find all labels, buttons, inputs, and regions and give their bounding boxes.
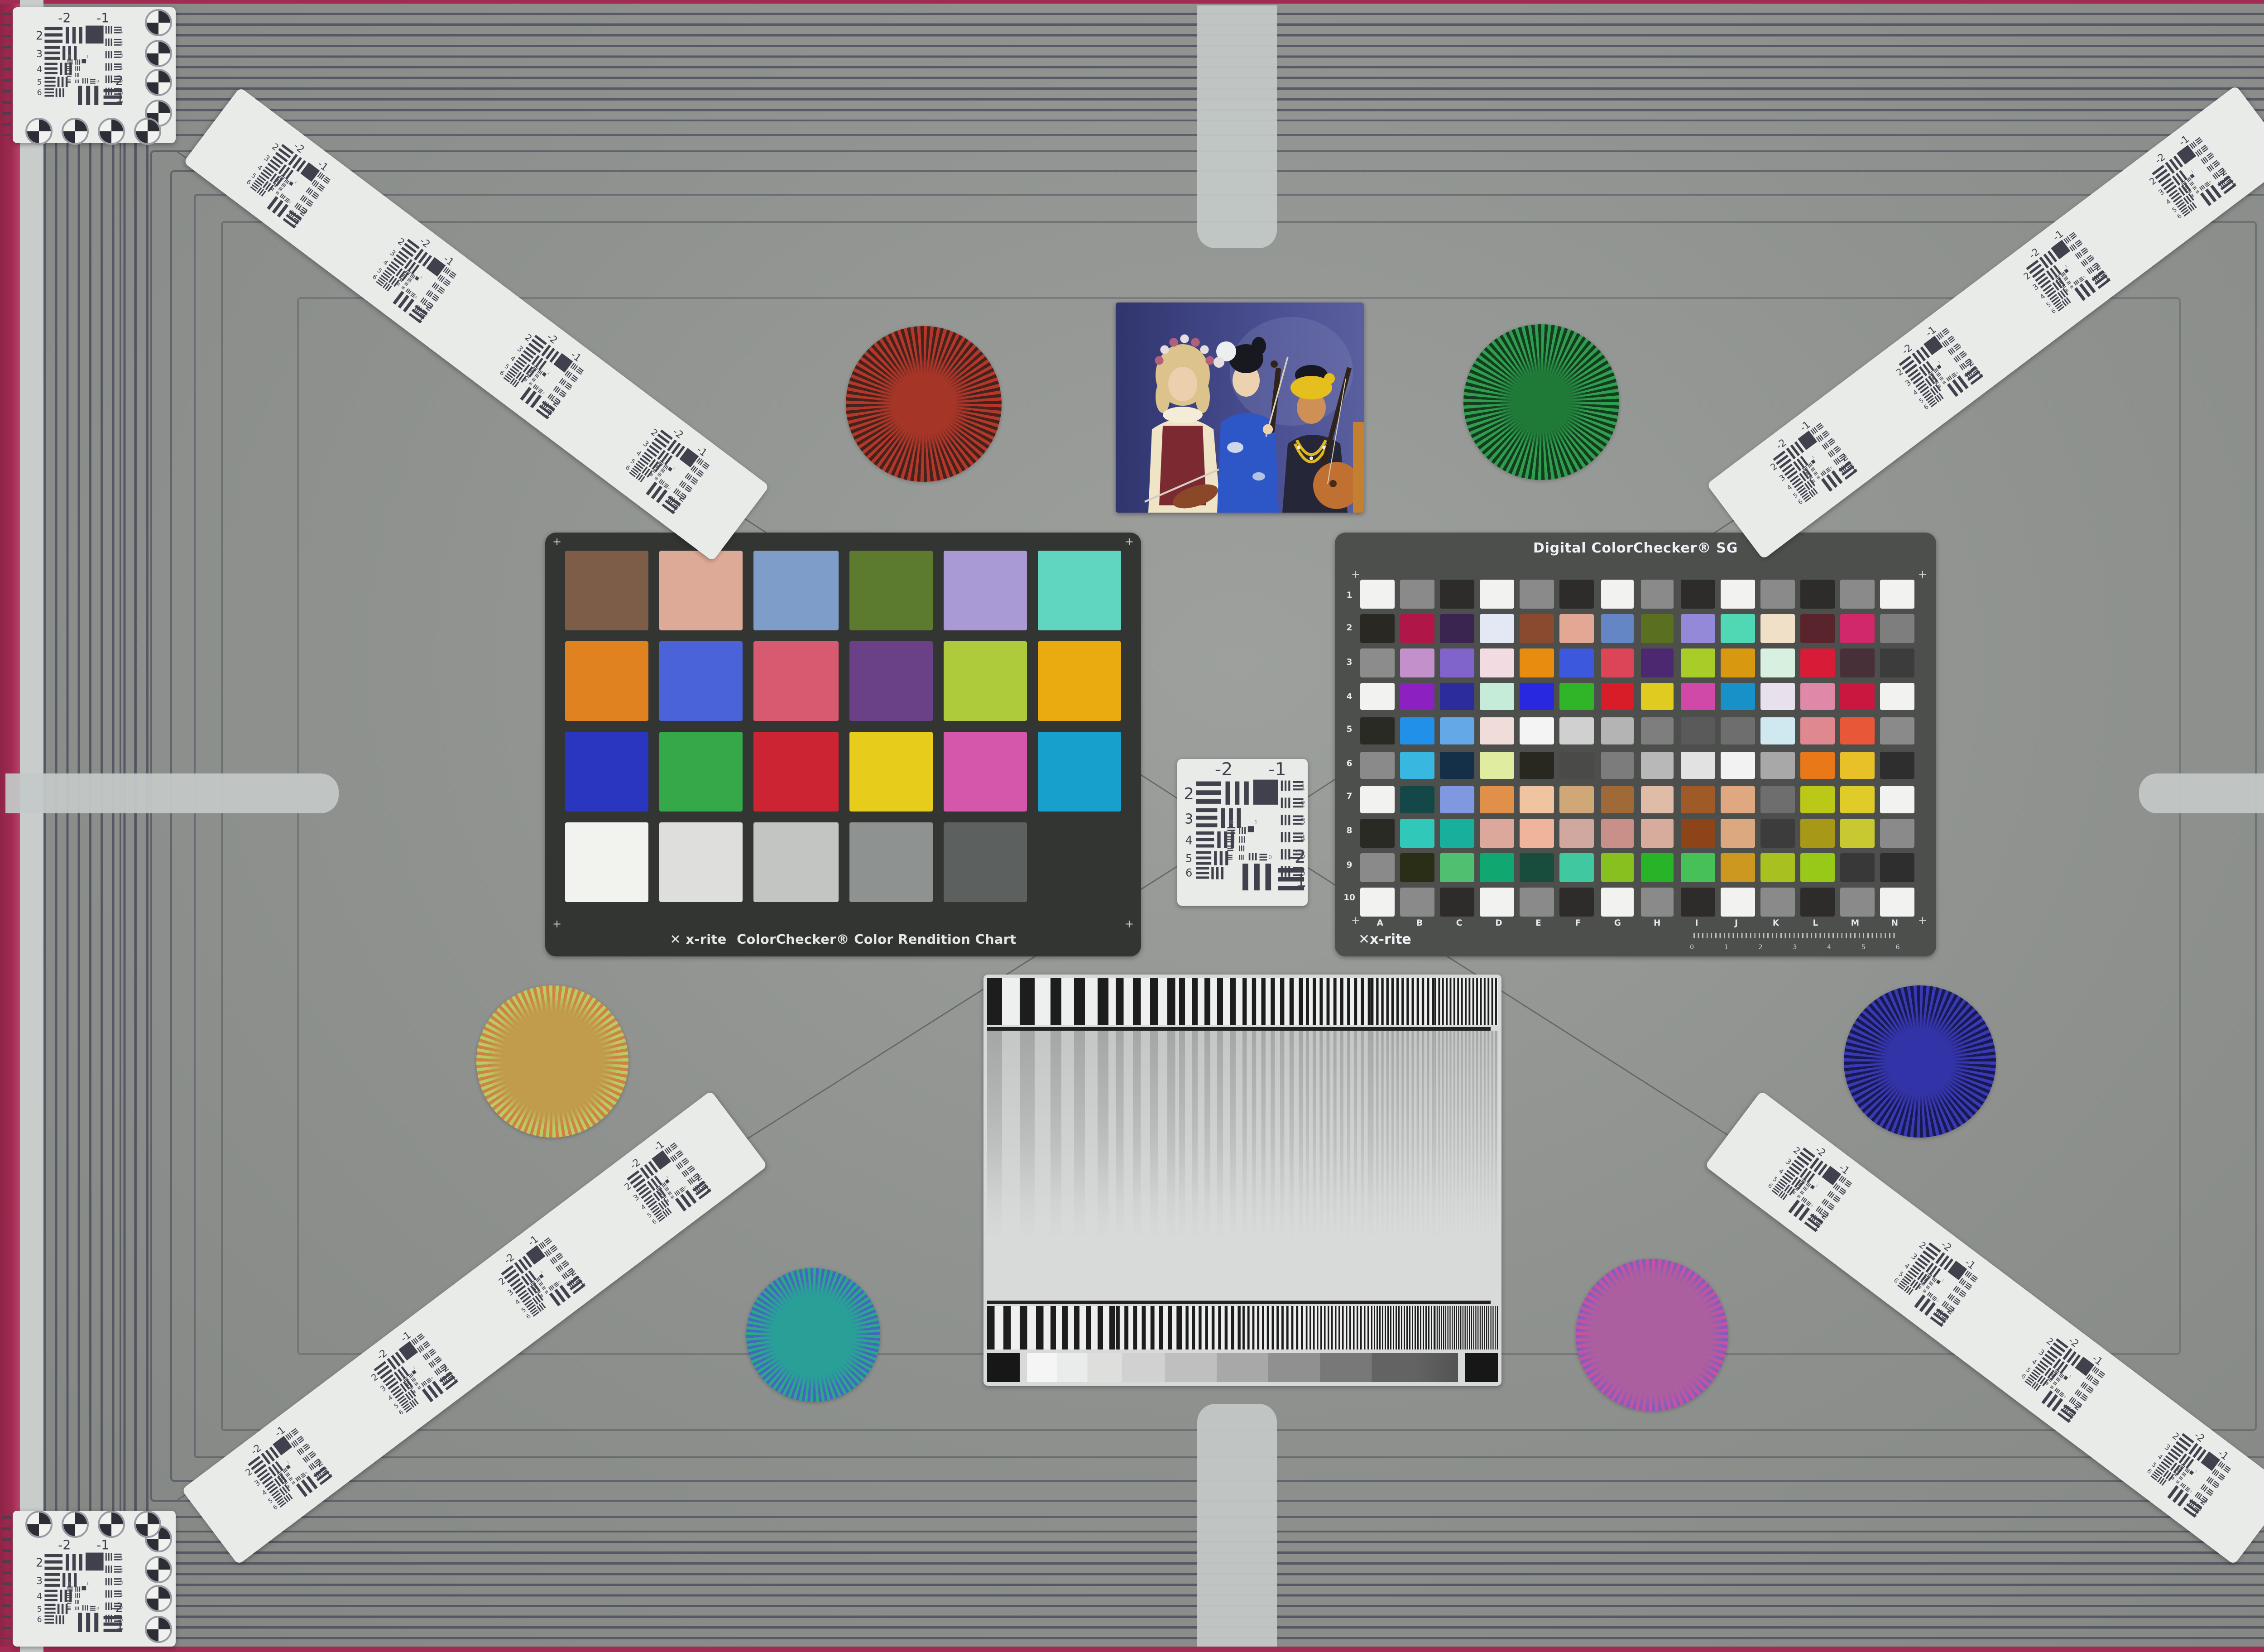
quadrant-circle-icon <box>27 119 51 142</box>
color-patch <box>1560 888 1594 917</box>
svg-text:0: 0 <box>663 457 667 462</box>
quadrant-circle-icon <box>63 1512 87 1535</box>
edge-tick-ruler <box>2 1516 10 1639</box>
color-patch <box>1440 820 1474 848</box>
sg-micro-ruler <box>1693 932 1896 938</box>
svg-text:1: 1 <box>86 1581 89 1586</box>
svg-text:2: 2 <box>1824 430 1830 436</box>
color-patch <box>1800 820 1834 848</box>
svg-text:2: 2 <box>299 1436 305 1441</box>
svg-text:6: 6 <box>2147 1468 2154 1475</box>
edge-light-strip <box>20 0 43 1652</box>
color-patch <box>1360 614 1394 643</box>
color-patch <box>1400 580 1434 608</box>
svg-text:1: 1 <box>674 465 678 470</box>
registration-plus-icon: + <box>1918 571 1927 581</box>
color-patch <box>1880 648 1914 677</box>
svg-text:-2: -2 <box>628 1156 643 1171</box>
svg-text:-1: -1 <box>96 1538 109 1552</box>
color-patch <box>565 732 649 812</box>
color-patch <box>754 822 838 902</box>
svg-text:0: 0 <box>1804 1174 1808 1179</box>
color-patch <box>1400 614 1434 643</box>
edge-tick-ruler <box>2 13 10 136</box>
svg-text:3: 3 <box>263 152 272 162</box>
color-patch <box>660 732 743 812</box>
chart-title: ColorChecker® Color Rendition Chart <box>737 931 1016 947</box>
svg-text:0: 0 <box>288 199 293 204</box>
color-patch <box>1721 785 1755 814</box>
svg-text:1: 1 <box>547 370 551 374</box>
svg-text:2: 2 <box>36 29 43 43</box>
svg-text:-2: -2 <box>2193 1430 2208 1445</box>
label: D <box>1479 920 1518 929</box>
svg-text:1: 1 <box>294 1428 299 1433</box>
svg-text:0: 0 <box>2190 1489 2194 1494</box>
svg-text:4: 4 <box>311 1451 317 1456</box>
color-patch <box>1760 648 1794 677</box>
color-patch <box>849 822 932 902</box>
svg-text:0: 0 <box>542 390 546 394</box>
color-patch <box>1721 854 1755 882</box>
svg-text:2: 2 <box>1184 785 1194 803</box>
svg-text:1: 1 <box>2068 1373 2072 1378</box>
colorchecker-classic: + + + + ✕ x-rite ColorChecker® Color Ren… <box>545 533 1141 956</box>
color-patch <box>1521 820 1554 848</box>
color-patch <box>1880 785 1914 814</box>
color-patch <box>1760 888 1794 917</box>
label: 5 <box>1340 727 1358 736</box>
svg-text:1: 1 <box>1815 1182 1819 1187</box>
svg-text:3: 3 <box>120 1579 123 1585</box>
color-patch <box>1800 580 1834 608</box>
svg-text:1: 1 <box>1254 819 1258 826</box>
svg-text:3: 3 <box>2037 1347 2046 1357</box>
color-patch <box>1560 614 1594 643</box>
svg-text:4: 4 <box>2038 293 2046 301</box>
svg-text:1: 1 <box>116 1618 124 1633</box>
svg-text:0: 0 <box>2063 1393 2067 1398</box>
color-patch <box>1721 751 1755 779</box>
corner-fiducial-bottom-left: 23456-2-1123456010-21 <box>13 1511 176 1647</box>
svg-text:3: 3 <box>305 1443 311 1449</box>
grayscale-ramp <box>1027 1353 1458 1382</box>
crimson-edge-top <box>0 0 2264 4</box>
color-patch <box>1600 614 1634 643</box>
color-patch <box>660 551 743 630</box>
svg-text:2: 2 <box>2078 239 2083 245</box>
svg-text:4: 4 <box>2089 255 2095 260</box>
color-patch <box>1880 580 1914 608</box>
color-patch <box>1640 820 1674 848</box>
quadrant-circle-icon <box>147 1557 170 1580</box>
siemens-star-green <box>1463 324 1619 480</box>
svg-text:5: 5 <box>1898 1270 1905 1278</box>
svg-text:2: 2 <box>397 235 408 247</box>
svg-text:6: 6 <box>1893 1277 1900 1284</box>
color-patch <box>1680 614 1714 643</box>
label: 5 <box>1861 943 1866 950</box>
svg-text:1: 1 <box>321 1467 333 1479</box>
svg-text:2: 2 <box>1951 335 1957 340</box>
svg-text:1: 1 <box>701 1180 713 1193</box>
svg-text:6: 6 <box>372 273 379 281</box>
label: 10 <box>1340 895 1358 904</box>
color-patch <box>1400 682 1434 711</box>
color-patch <box>849 551 932 630</box>
svg-text:1: 1 <box>538 1269 542 1273</box>
svg-text:-2: -2 <box>2066 1334 2081 1349</box>
color-patch <box>1680 854 1714 882</box>
svg-text:1: 1 <box>120 1554 123 1561</box>
color-patch <box>1521 785 1554 814</box>
color-patch <box>1841 785 1875 814</box>
label: I <box>1677 920 1716 929</box>
color-patch <box>1640 682 1674 711</box>
color-patch <box>1400 854 1434 882</box>
color-patch <box>1721 888 1755 917</box>
color-patch <box>1360 751 1394 779</box>
svg-text:-1: -1 <box>1797 419 1812 434</box>
brand-name: x-rite <box>686 931 726 947</box>
color-patch <box>1800 854 1834 882</box>
svg-text:3: 3 <box>2164 1442 2173 1452</box>
color-patch <box>1680 888 1714 917</box>
color-patch <box>1360 717 1394 745</box>
svg-text:0: 0 <box>2184 1461 2188 1465</box>
grayscale-ramp-row <box>987 1353 1498 1382</box>
label: 1 <box>1724 943 1728 950</box>
svg-text:-1: -1 <box>1268 759 1286 780</box>
border-stripes-top <box>16 13 2264 118</box>
registration-plus-icon: + <box>1351 917 1360 927</box>
color-patch <box>1841 580 1875 608</box>
svg-text:5: 5 <box>250 171 257 179</box>
svg-text:1: 1 <box>665 1173 669 1178</box>
svg-text:4: 4 <box>2030 1357 2038 1365</box>
svg-text:4: 4 <box>120 1591 123 1598</box>
color-patch <box>1841 820 1875 848</box>
color-patch <box>660 641 743 721</box>
label: F <box>1558 920 1597 929</box>
quadrant-circle-icon <box>136 119 159 142</box>
corner-fiducial-top-left: 23456-2-1123456010-21 <box>13 7 176 143</box>
svg-text:0: 0 <box>1936 1298 1940 1302</box>
color-patch <box>1760 854 1794 882</box>
color-patch <box>1841 614 1875 643</box>
svg-text:4: 4 <box>1785 483 1793 491</box>
color-patch <box>1841 682 1875 711</box>
siemens-star-gold <box>476 985 628 1138</box>
svg-text:-2: -2 <box>1813 1143 1828 1158</box>
svg-text:4: 4 <box>564 1260 570 1265</box>
color-patch <box>1480 614 1514 643</box>
svg-text:0: 0 <box>2058 1365 2062 1370</box>
color-patch <box>849 732 932 812</box>
color-patch <box>1841 888 1875 917</box>
svg-text:-2: -2 <box>248 1442 263 1457</box>
svg-text:1: 1 <box>420 274 424 279</box>
svg-text:0: 0 <box>668 485 672 490</box>
label: 2 <box>1759 943 1763 950</box>
color-patch <box>1680 580 1714 608</box>
svg-text:1: 1 <box>1295 870 1307 891</box>
color-patch <box>1037 641 1121 721</box>
svg-text:-2: -2 <box>672 426 686 441</box>
svg-text:-2: -2 <box>58 11 71 25</box>
svg-text:0: 0 <box>1810 1203 1814 1207</box>
svg-text:-2: -2 <box>110 1600 123 1615</box>
svg-text:1: 1 <box>1942 1278 1946 1282</box>
color-patch <box>1440 580 1474 608</box>
svg-text:3: 3 <box>2211 151 2216 157</box>
svg-text:2: 2 <box>650 427 661 438</box>
color-patch <box>1480 785 1514 814</box>
color-patch <box>1880 717 1914 745</box>
label: 4 <box>1340 693 1358 702</box>
label: M <box>1835 920 1875 929</box>
svg-text:3: 3 <box>1185 811 1193 827</box>
color-patch <box>1521 888 1554 917</box>
quadrant-circle-icon <box>100 119 123 142</box>
color-patch <box>1037 822 1121 902</box>
svg-text:1: 1 <box>2226 175 2238 187</box>
svg-text:1: 1 <box>575 1276 586 1288</box>
color-patch <box>1880 614 1914 643</box>
svg-text:-2: -2 <box>1940 1239 1955 1253</box>
svg-text:-1: -1 <box>2177 132 2192 147</box>
quadrant-circle-icon <box>27 1512 51 1535</box>
svg-text:4: 4 <box>37 65 42 74</box>
color-patch <box>1721 682 1755 711</box>
svg-text:2: 2 <box>36 1556 43 1570</box>
classic-patch-grid <box>565 551 1121 902</box>
color-patch <box>1721 717 1755 745</box>
color-patch <box>1440 614 1474 643</box>
svg-text:1: 1 <box>2100 270 2111 283</box>
color-patch <box>1640 751 1674 779</box>
svg-text:1: 1 <box>448 1371 460 1384</box>
svg-text:2: 2 <box>1791 1143 1802 1155</box>
label: 7 <box>1340 794 1358 803</box>
color-patch <box>1640 614 1674 643</box>
color-patch <box>1440 888 1474 917</box>
color-patch <box>1400 888 1434 917</box>
color-patch <box>1440 751 1474 779</box>
usaf-target-center: 23456-2-1123456010-21 <box>1177 759 1308 906</box>
color-patch <box>1680 751 1714 779</box>
color-patch <box>1521 614 1554 643</box>
svg-text:3: 3 <box>1830 438 1836 443</box>
svg-text:0: 0 <box>96 79 99 84</box>
svg-text:2: 2 <box>120 1566 123 1573</box>
color-patch <box>1440 854 1474 882</box>
svg-text:1: 1 <box>1937 359 1941 364</box>
color-patch <box>1400 648 1434 677</box>
flare-bar-bottom <box>1197 1404 1277 1647</box>
divider-line <box>987 1301 1491 1303</box>
color-patch <box>1600 854 1634 882</box>
svg-text:3: 3 <box>36 48 43 60</box>
svg-text:1: 1 <box>285 1460 289 1465</box>
svg-text:5: 5 <box>2025 1366 2032 1373</box>
svg-text:1: 1 <box>1945 327 1951 332</box>
color-patch <box>1480 648 1514 677</box>
color-patch <box>1800 648 1834 677</box>
color-patch <box>1841 751 1875 779</box>
registration-plus-icon: + <box>552 920 561 931</box>
color-patch <box>1800 785 1834 814</box>
svg-text:6: 6 <box>499 369 506 376</box>
svg-text:3: 3 <box>1300 817 1305 826</box>
svg-text:1: 1 <box>1810 455 1814 459</box>
color-patch <box>1880 751 1914 779</box>
sweep-fade-area <box>987 1031 1498 1299</box>
color-patch <box>1521 648 1554 677</box>
svg-text:6: 6 <box>398 1408 405 1416</box>
color-patch <box>1680 717 1714 745</box>
svg-text:-2: -2 <box>292 139 307 154</box>
flare-bar-right <box>2139 773 2264 813</box>
color-patch <box>1600 751 1634 779</box>
svg-text:5: 5 <box>1791 492 1799 499</box>
color-patch <box>1480 854 1514 882</box>
quadrant-circle-icon <box>63 119 87 142</box>
sg-chart-title: Digital ColorChecker® SG <box>1335 540 1936 556</box>
svg-text:4: 4 <box>691 1164 696 1170</box>
color-patch <box>943 732 1027 812</box>
svg-text:6: 6 <box>1796 498 1803 506</box>
color-patch <box>1880 682 1914 711</box>
svg-text:5: 5 <box>504 362 511 370</box>
svg-text:3: 3 <box>389 248 398 258</box>
frequency-sweep-chart <box>983 975 1501 1386</box>
color-patch <box>1360 785 1394 814</box>
svg-text:4: 4 <box>260 1489 268 1497</box>
color-patch <box>1560 820 1594 848</box>
svg-text:5: 5 <box>1185 852 1192 864</box>
color-patch <box>754 732 838 812</box>
svg-text:3: 3 <box>36 1575 43 1587</box>
color-patch <box>1600 580 1634 608</box>
color-patch <box>1440 717 1474 745</box>
svg-text:3: 3 <box>432 1348 437 1353</box>
divider-line <box>987 1027 1491 1030</box>
svg-text:2: 2 <box>2045 1335 2056 1346</box>
svg-text:1: 1 <box>2072 232 2077 237</box>
color-patch <box>1560 854 1594 882</box>
svg-text:1: 1 <box>1300 783 1305 792</box>
quadrant-circle-icon <box>136 1512 159 1535</box>
svg-text:3: 3 <box>686 1157 691 1162</box>
registration-plus-icon: + <box>1125 538 1134 549</box>
svg-text:4: 4 <box>2157 1453 2165 1461</box>
usaf-target-corner: 23456-2-1123456010-21 <box>22 1538 134 1643</box>
xrite-logo-icon: ✕ <box>1358 931 1370 947</box>
svg-text:-2: -2 <box>58 1538 71 1552</box>
color-patch <box>1760 785 1794 814</box>
color-patch <box>1880 888 1914 917</box>
svg-text:0: 0 <box>96 1606 99 1611</box>
svg-text:1: 1 <box>547 1237 552 1243</box>
svg-text:1: 1 <box>293 179 297 183</box>
svg-text:3: 3 <box>643 439 652 449</box>
color-patch <box>1521 854 1554 882</box>
svg-text:4: 4 <box>120 64 123 71</box>
svg-text:0: 0 <box>1230 819 1233 826</box>
svg-text:2: 2 <box>2171 1430 2182 1442</box>
color-patch <box>660 822 743 902</box>
svg-text:4: 4 <box>2165 197 2173 205</box>
svg-text:5: 5 <box>37 1605 42 1614</box>
fading-stripes <box>987 1031 1498 1299</box>
color-patch <box>1037 551 1121 630</box>
svg-text:4: 4 <box>37 1592 42 1601</box>
color-patch <box>1880 820 1914 848</box>
color-patch <box>1600 648 1634 677</box>
sg-ruler-numbers: 0123456 <box>1690 943 1900 950</box>
svg-text:5: 5 <box>1918 396 1925 404</box>
svg-text:3: 3 <box>516 343 525 353</box>
label: 6 <box>1896 943 1900 950</box>
svg-text:0: 0 <box>536 362 540 366</box>
svg-text:6: 6 <box>271 1503 278 1511</box>
svg-text:0: 0 <box>69 54 72 59</box>
svg-text:0: 0 <box>415 294 419 299</box>
color-patch <box>1800 614 1834 643</box>
color-patch <box>1440 682 1474 711</box>
color-patch <box>1800 751 1834 779</box>
color-patch <box>565 551 649 630</box>
registration-plus-icon: + <box>1918 917 1927 927</box>
color-patch <box>943 551 1027 630</box>
svg-text:-2: -2 <box>1773 437 1788 451</box>
label: 0 <box>1690 943 1694 950</box>
quadrant-circle-icon <box>147 1587 170 1610</box>
label: N <box>1875 920 1914 929</box>
svg-text:4: 4 <box>438 1355 443 1361</box>
colorchecker-sg: Digital ColorChecker® SG 12345678910 ABC… <box>1335 533 1936 956</box>
color-patch <box>1800 682 1834 711</box>
label: K <box>1756 920 1795 929</box>
color-patch <box>1841 854 1875 882</box>
color-patch <box>1560 682 1594 711</box>
registration-plus-icon: + <box>552 538 561 549</box>
svg-text:6: 6 <box>625 464 633 472</box>
svg-text:6: 6 <box>651 1217 658 1225</box>
siemens-star-magenta <box>1576 1259 1728 1411</box>
svg-text:3: 3 <box>1784 1156 1793 1166</box>
color-patch <box>1400 820 1434 848</box>
color-patch <box>1600 785 1634 814</box>
color-patch <box>1560 648 1594 677</box>
color-patch <box>1480 682 1514 711</box>
svg-text:0: 0 <box>69 1581 72 1586</box>
color-patch <box>1721 614 1755 643</box>
svg-text:2: 2 <box>680 1149 685 1154</box>
svg-text:5: 5 <box>37 78 42 87</box>
label: 4 <box>1827 943 1831 950</box>
color-patch <box>1360 888 1394 917</box>
color-patch <box>1880 854 1914 882</box>
svg-text:4: 4 <box>1777 1166 1785 1174</box>
xrite-logo-icon: ✕ <box>670 931 681 947</box>
svg-text:1: 1 <box>1819 423 1824 428</box>
color-patch <box>849 641 932 721</box>
svg-text:-1: -1 <box>398 1329 413 1344</box>
square-wave-strip-bottom <box>987 1306 1498 1349</box>
svg-text:5: 5 <box>630 457 637 465</box>
